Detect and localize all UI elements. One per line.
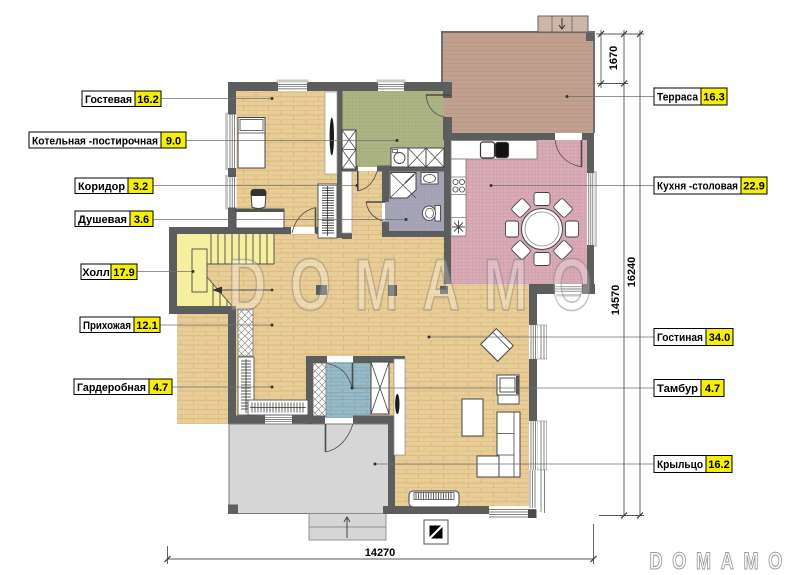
svg-text:12.1: 12.1 (136, 320, 157, 332)
svg-text:Холл: Холл (82, 267, 110, 279)
svg-text:Гардеробная: Гардеробная (77, 382, 146, 394)
svg-text:16240: 16240 (626, 257, 638, 288)
svg-text:4.7: 4.7 (153, 382, 168, 394)
svg-text:Котельная -постирочная: Котельная -постирочная (32, 135, 158, 147)
svg-text:22.9: 22.9 (743, 180, 764, 192)
svg-text:34.0: 34.0 (709, 332, 730, 344)
svg-text:17.9: 17.9 (113, 267, 134, 279)
svg-text:Тамбур: Тамбур (657, 383, 698, 395)
svg-text:3.2: 3.2 (133, 181, 148, 193)
svg-text:16.3: 16.3 (703, 91, 724, 103)
svg-text:Коридор: Коридор (78, 181, 125, 193)
svg-text:Гостиная: Гостиная (657, 332, 703, 344)
svg-text:14270: 14270 (365, 547, 396, 559)
svg-text:16.2: 16.2 (137, 94, 158, 106)
svg-text:DOMAMO: DOMAMO (650, 549, 792, 575)
svg-text:Крыльцо: Крыльцо (657, 459, 703, 471)
svg-text:DOMAMO: DOMAMO (228, 245, 616, 326)
svg-text:3.6: 3.6 (134, 214, 149, 226)
svg-text:9.0: 9.0 (166, 135, 181, 147)
svg-text:1670: 1670 (608, 46, 620, 70)
svg-text:Кухня -столовая: Кухня -столовая (657, 180, 738, 192)
svg-text:16.2: 16.2 (708, 459, 729, 471)
svg-text:Гостевая: Гостевая (85, 94, 132, 106)
svg-text:Прихожая: Прихожая (83, 320, 131, 332)
svg-text:Душевая: Душевая (78, 214, 127, 226)
svg-text:Терраса: Терраса (657, 91, 699, 103)
svg-text:4.7: 4.7 (705, 383, 720, 395)
